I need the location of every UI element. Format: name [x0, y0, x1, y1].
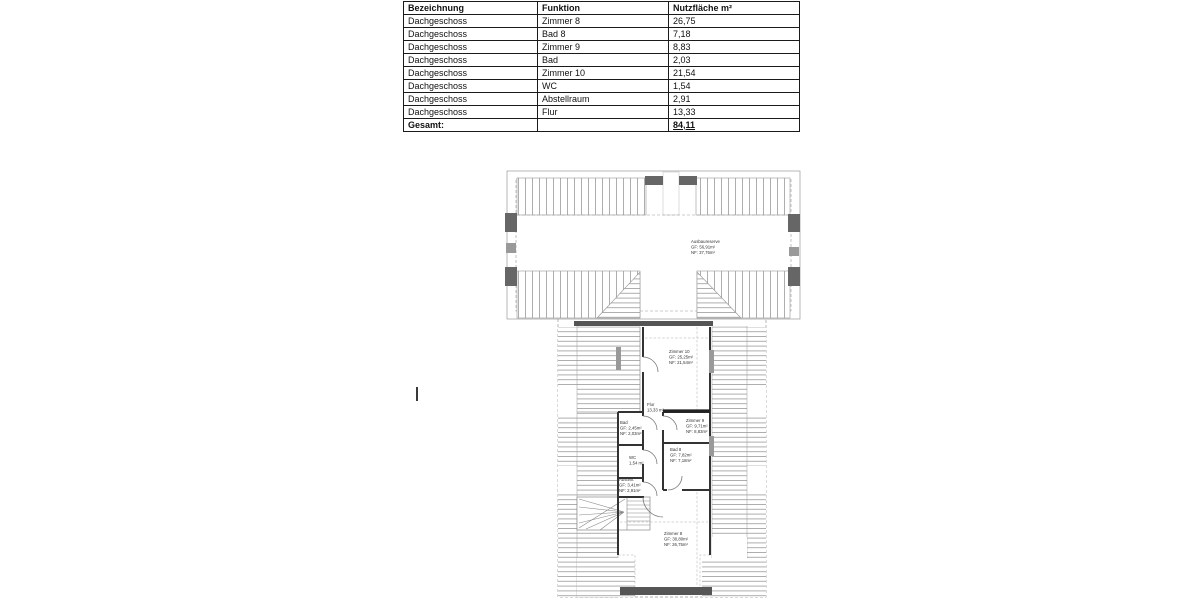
room-label-zimmer9: Zimmer 9 GF: 9,71m² NF: 8,83m² — [686, 418, 708, 434]
floor-lower-section: Zimmer 10 GF: 25,25m² NF: 21,54m² Flur 1… — [558, 319, 766, 597]
svg-text:GF: 9,71m²: GF: 9,71m² — [686, 424, 708, 429]
svg-text:Zimmer 9: Zimmer 9 — [686, 418, 705, 423]
rafter-hatch — [517, 178, 646, 215]
svg-text:Flur: Flur — [647, 402, 655, 407]
svg-text:Zimmer 10: Zimmer 10 — [669, 349, 690, 354]
table-cell: 8,83 — [669, 41, 800, 54]
svg-text:NF: 2,03m²: NF: 2,03m² — [620, 431, 642, 436]
table-cell: Dachgeschoss — [404, 67, 538, 80]
total-value-cell: 84,11 — [669, 119, 800, 132]
document-page: Bezeichnung Funktion Nutzfläche m² Dachg… — [0, 0, 1200, 600]
roof-slope-hatch — [747, 327, 766, 597]
svg-text:NF: 21,54m²: NF: 21,54m² — [669, 360, 693, 365]
svg-text:GF: 30,80m²: GF: 30,80m² — [664, 537, 689, 542]
svg-text:Abstellr.: Abstellr. — [619, 477, 634, 482]
table-row: Dachgeschoss Abstellraum 2,91 — [404, 93, 800, 106]
table-cell: 1,54 — [669, 80, 800, 93]
table-total-row: Gesamt: 84,11 — [404, 119, 800, 132]
table-cell: 2,03 — [669, 54, 800, 67]
bottom-wall — [620, 587, 712, 595]
table-cell: 21,54 — [669, 67, 800, 80]
table-cell: Abstellraum — [538, 93, 669, 106]
table-header-row: Bezeichnung Funktion Nutzfläche m² — [404, 2, 800, 15]
table-cell: Zimmer 10 — [538, 67, 669, 80]
table-cell: Bad — [538, 54, 669, 67]
room-label-zimmer8: Zimmer 8 GF: 30,80m² NF: 26,75m² — [664, 531, 689, 547]
room-label-zimmer10: Zimmer 10 GF: 25,25m² NF: 21,54m² — [669, 349, 694, 365]
table-row: Dachgeschoss Bad 2,03 — [404, 54, 800, 67]
table-row: Dachgeschoss WC 1,54 — [404, 80, 800, 93]
room-label-abstellraum: Abstellr. GF: 3,41m² NF: 2,91m² — [619, 477, 641, 493]
room-label-flur: Flur 13,33 m² — [647, 402, 665, 413]
room-label-bad8: Bad 8 GF: 7,82m² NF: 7,18m² — [670, 447, 692, 463]
table-cell: Flur — [538, 106, 669, 119]
svg-text:WC: WC — [629, 455, 636, 460]
table-cell: 26,75 — [669, 15, 800, 28]
header-nutzflaeche: Nutzfläche m² — [669, 2, 800, 15]
svg-text:1,54 m²: 1,54 m² — [629, 461, 644, 466]
table-cell: Dachgeschoss — [404, 15, 538, 28]
rafter-hatch — [696, 178, 790, 215]
table-cell: Dachgeschoss — [404, 93, 538, 106]
table-cell: Zimmer 9 — [538, 41, 669, 54]
table-row: Dachgeschoss Zimmer 8 26,75 — [404, 15, 800, 28]
svg-text:Ausbaureserve: Ausbaureserve — [691, 239, 721, 244]
table-cell: Dachgeschoss — [404, 41, 538, 54]
table-row: Dachgeschoss Zimmer 10 21,54 — [404, 67, 800, 80]
svg-text:NF: 8,83m²: NF: 8,83m² — [686, 429, 708, 434]
table-cell: 13,33 — [669, 106, 800, 119]
text-cursor-mark — [416, 387, 418, 401]
svg-text:GF: 7,82m²: GF: 7,82m² — [670, 453, 692, 458]
table-cell: 7,18 — [669, 28, 800, 41]
svg-text:NF: 37,76m²: NF: 37,76m² — [691, 250, 715, 255]
roof-top-section: Ausbaureserve GF: 56,91m² NF: 37,76m² — [505, 171, 800, 319]
table-row: Dachgeschoss Zimmer 9 8,83 — [404, 41, 800, 54]
table-row: Dachgeschoss Flur 13,33 — [404, 106, 800, 119]
svg-text:GF: 2,45m²: GF: 2,45m² — [620, 426, 642, 431]
svg-text:Bad: Bad — [620, 420, 628, 425]
header-funktion: Funktion — [538, 2, 669, 15]
wall-blocks-right — [788, 214, 800, 286]
room-label-bad: Bad GF: 2,45m² NF: 2,03m² — [620, 420, 642, 436]
svg-text:GF: 25,25m²: GF: 25,25m² — [669, 355, 694, 360]
table-cell: 2,91 — [669, 93, 800, 106]
floor-plan: Ausbaureserve GF: 56,91m² NF: 37,76m² — [400, 162, 810, 600]
svg-text:GF: 3,41m²: GF: 3,41m² — [619, 483, 641, 488]
wall-blocks-left — [505, 213, 517, 286]
svg-text:13,33 m²: 13,33 m² — [647, 408, 665, 413]
svg-text:NF: 2,91m²: NF: 2,91m² — [619, 488, 641, 493]
svg-text:NF: 7,18m²: NF: 7,18m² — [670, 458, 692, 463]
room-label-wc: WC 1,54 m² — [629, 455, 644, 466]
room-area-table: Bezeichnung Funktion Nutzfläche m² Dachg… — [403, 1, 800, 132]
svg-text:NF: 26,75m²: NF: 26,75m² — [664, 542, 688, 547]
total-value: 84,11 — [673, 120, 695, 130]
table-cell: Bad 8 — [538, 28, 669, 41]
roof-slope-hatch — [558, 327, 577, 597]
header-bezeichnung: Bezeichnung — [404, 2, 538, 15]
table-cell: Dachgeschoss — [404, 106, 538, 119]
table-cell: Dachgeschoss — [404, 80, 538, 93]
roof-slope-hatch — [577, 327, 640, 412]
roof-slope-hatch — [712, 327, 747, 558]
table-cell: Dachgeschoss — [404, 28, 538, 41]
svg-text:GF: 56,91m²: GF: 56,91m² — [691, 245, 716, 250]
svg-text:Bad 8: Bad 8 — [670, 447, 682, 452]
table-cell: Zimmer 8 — [538, 15, 669, 28]
total-label: Gesamt: — [404, 119, 538, 132]
svg-text:Zimmer 8: Zimmer 8 — [664, 531, 683, 536]
table-cell: WC — [538, 80, 669, 93]
table-row: Dachgeschoss Bad 8 7,18 — [404, 28, 800, 41]
table-cell-empty — [538, 119, 669, 132]
ridge-wall — [574, 321, 713, 326]
staircase — [577, 497, 650, 530]
chimney-block — [679, 176, 697, 185]
table-cell: Dachgeschoss — [404, 54, 538, 67]
chimney-block — [645, 176, 663, 185]
